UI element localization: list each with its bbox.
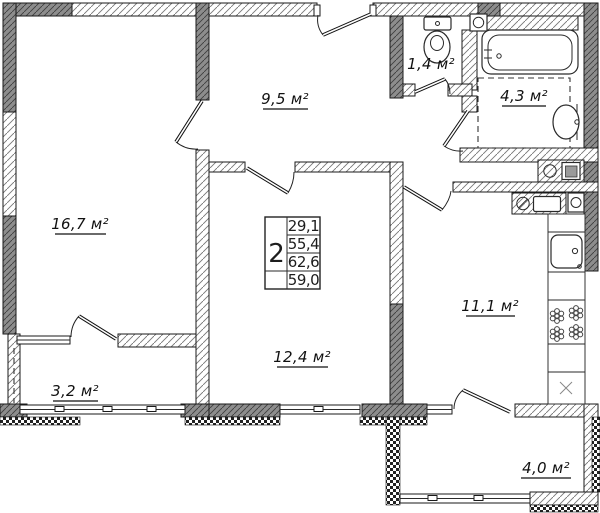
walls-light-part	[453, 182, 598, 192]
fixtures-part	[566, 166, 578, 177]
label-balcony-left: 3,2 м²	[51, 382, 99, 400]
doors-part	[71, 316, 79, 337]
insulation-strips-part	[0, 417, 80, 425]
duct-block-lower	[512, 193, 566, 214]
stamp-value-4: 59,0	[288, 271, 319, 289]
windows-part	[314, 407, 323, 412]
door-bedroom	[247, 168, 294, 193]
label-kitchen: 11,1 м²	[461, 297, 519, 315]
walls-dark-part	[196, 3, 209, 100]
duct-block-upper	[538, 160, 584, 182]
fixtures-part	[534, 197, 561, 212]
walls-dark-part	[390, 3, 403, 98]
stamp-room-count: 2	[268, 239, 284, 269]
walls-light-part	[118, 334, 196, 347]
walls-dark-part	[584, 3, 598, 271]
insulation-strips-part	[530, 505, 598, 512]
doors-part	[444, 111, 468, 146]
walls-light-part	[3, 112, 16, 216]
window-bedroom	[280, 405, 360, 414]
door-balcony-left	[71, 316, 116, 339]
walls-dark-part	[3, 216, 16, 334]
window-living-balcony	[17, 336, 70, 344]
walls-light-part	[448, 84, 472, 96]
washing-machine-top	[470, 14, 487, 31]
label-bathroom: 4,3 м²	[500, 87, 548, 105]
insulation-strips-part	[592, 417, 600, 492]
washing-machine-kitchen	[568, 193, 584, 212]
doors-part	[463, 390, 510, 412]
stamp-value-2: 55,4	[288, 235, 319, 253]
doors-part	[176, 142, 198, 149]
apartment-stamp: 2 29,1 55,4 62,6 59,0	[265, 217, 320, 289]
insulation-strips-part	[185, 417, 280, 425]
walls-light-part	[500, 3, 584, 16]
door-kitchen	[404, 187, 451, 210]
label-balcony-right: 4,0 м²	[522, 459, 570, 477]
doors-part	[323, 14, 371, 35]
door-balcony-right	[454, 390, 510, 412]
fixtures-part	[424, 17, 451, 30]
doors-part	[442, 191, 451, 210]
walls-light-part	[196, 150, 209, 404]
fixtures-part	[568, 193, 584, 212]
doors-part	[314, 5, 320, 16]
windows-part	[428, 496, 437, 501]
doors-part	[318, 15, 323, 35]
floor-plan-page: 2 29,1 55,4 62,6 59,0 16,7 м² 9,5 м² 1,4…	[0, 0, 600, 513]
doors-part	[79, 316, 116, 339]
label-toilet: 1,4 м²	[407, 55, 455, 73]
bathtub	[482, 30, 578, 74]
floor-plan: 2 29,1 55,4 62,6 59,0 16,7 м² 9,5 м² 1,4…	[0, 0, 600, 513]
walls-light-part	[72, 3, 196, 16]
windows-part	[103, 407, 112, 412]
walls-dark-part	[390, 304, 403, 404]
window-kitchen-side	[427, 405, 452, 414]
walls-light-part	[373, 3, 478, 16]
kitchen-counter	[548, 214, 585, 404]
fixtures-part	[470, 14, 487, 31]
kitchen-sink	[551, 235, 582, 268]
bathroom-sink	[553, 104, 579, 140]
walls-light-part	[462, 30, 477, 90]
stamp-value-3: 62,6	[288, 253, 319, 271]
walls-light-part	[462, 96, 477, 112]
doors-part	[415, 79, 445, 92]
label-living-room: 16,7 м²	[51, 215, 109, 233]
doors-part	[176, 101, 202, 142]
windows-part	[55, 407, 64, 412]
walls-dark-part	[3, 3, 16, 112]
fixtures-part	[482, 30, 578, 74]
walls-light-part	[480, 16, 578, 30]
walls-dark-part	[209, 404, 280, 417]
insulation-strips-part	[386, 417, 400, 505]
windows-part	[474, 496, 483, 501]
label-bedroom: 12,4 м²	[273, 348, 331, 366]
walls-light-part	[209, 162, 245, 172]
doors-part	[288, 172, 294, 193]
doors-part	[247, 168, 288, 193]
label-hallway: 9,5 м²	[261, 90, 309, 108]
door-bathroom	[444, 111, 468, 151]
windows-part	[147, 407, 156, 412]
stamp-value-1: 29,1	[288, 217, 319, 235]
door-living-room	[176, 101, 202, 149]
walls-dark-part	[362, 404, 427, 417]
walls-light-part	[390, 162, 403, 304]
walls-light-part	[403, 84, 415, 96]
walls-light-part	[515, 404, 585, 417]
walls-light-part	[209, 3, 317, 16]
walls-light-part	[530, 492, 598, 505]
door-entrance	[314, 5, 376, 35]
door-toilet	[415, 79, 450, 94]
walls-light-part	[295, 162, 390, 172]
window-balcony-right-glazing	[400, 494, 530, 503]
doors-part	[404, 187, 442, 210]
window-balcony-left-glazing	[20, 405, 185, 414]
doors-part	[454, 390, 463, 409]
